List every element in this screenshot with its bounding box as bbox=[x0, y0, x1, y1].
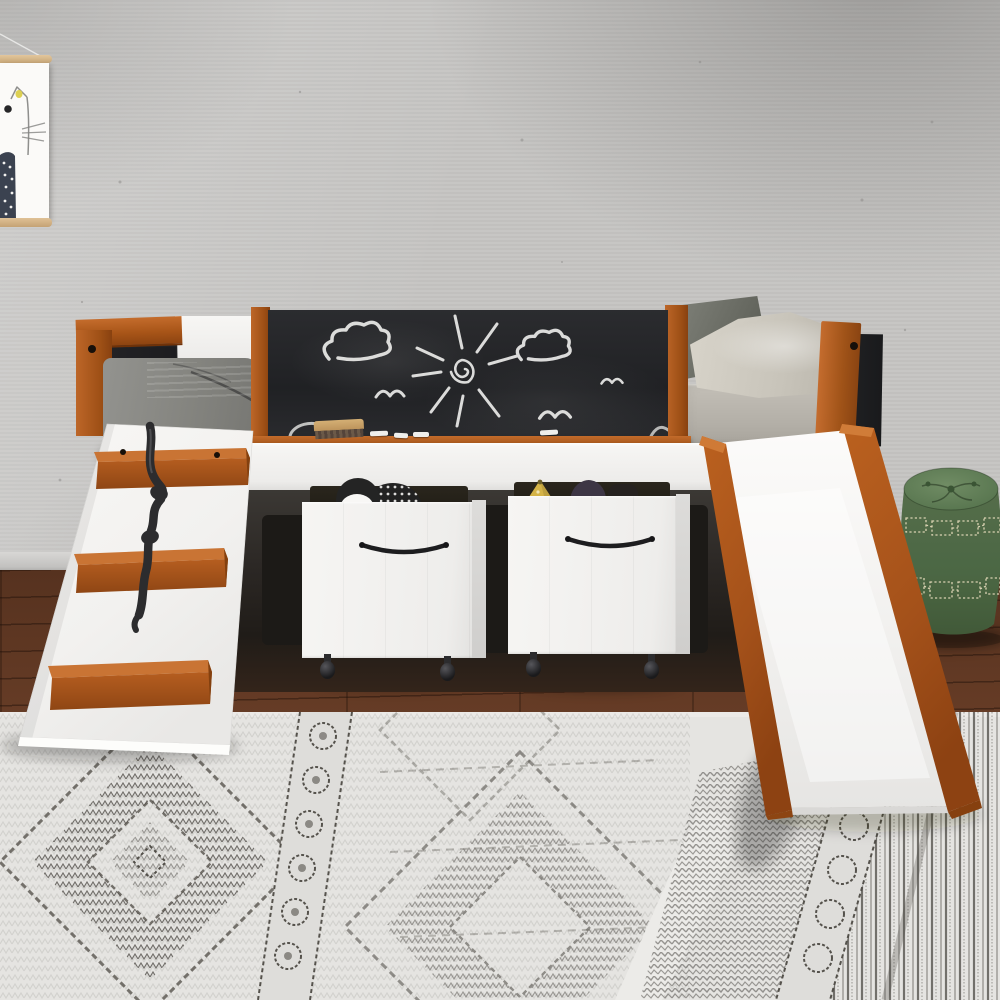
toy-bin-right bbox=[504, 472, 694, 682]
toy-bin-left bbox=[298, 476, 488, 686]
chalk-birds bbox=[376, 379, 623, 418]
bin-caster bbox=[526, 652, 541, 680]
slide[interactable] bbox=[690, 418, 1000, 820]
bin-caster bbox=[644, 654, 659, 682]
cat-illustration bbox=[0, 63, 49, 220]
cat-body bbox=[0, 152, 16, 220]
chalk-cloud-right bbox=[517, 330, 570, 360]
chalkboard-post-right bbox=[665, 305, 688, 456]
cat-poster bbox=[0, 30, 60, 235]
bin-left-handle[interactable] bbox=[356, 540, 452, 560]
chalk-eraser-brush bbox=[314, 419, 365, 440]
poster-hanger-top bbox=[0, 55, 52, 63]
left-post-hole bbox=[88, 345, 96, 353]
ramp-step-1[interactable] bbox=[94, 448, 250, 489]
chalk-stick bbox=[540, 430, 558, 436]
climbing-ramp[interactable] bbox=[0, 415, 280, 760]
cat-eye bbox=[4, 105, 12, 113]
bin-right-handle[interactable] bbox=[562, 534, 658, 554]
bin-caster bbox=[320, 654, 335, 682]
bin-left-side bbox=[472, 500, 486, 658]
cat-ear-yellow bbox=[16, 90, 23, 98]
bin-right-front bbox=[508, 496, 676, 654]
chalk-stick bbox=[413, 432, 429, 437]
bin-caster bbox=[440, 656, 455, 684]
chalk-stick bbox=[394, 433, 408, 439]
room-scene bbox=[0, 0, 1000, 1000]
poster-hanger-bottom bbox=[0, 218, 52, 227]
chalk-sun-drawing bbox=[413, 316, 517, 426]
ramp-step-3[interactable] bbox=[48, 660, 212, 710]
chalk-stick bbox=[370, 431, 388, 437]
bin-left-front bbox=[302, 502, 472, 658]
bin-right-side bbox=[676, 494, 690, 654]
cat-whiskers bbox=[22, 123, 46, 141]
poster-paper bbox=[0, 63, 49, 220]
right-post-hole bbox=[850, 342, 858, 350]
chalk-cloud-left bbox=[324, 322, 390, 359]
